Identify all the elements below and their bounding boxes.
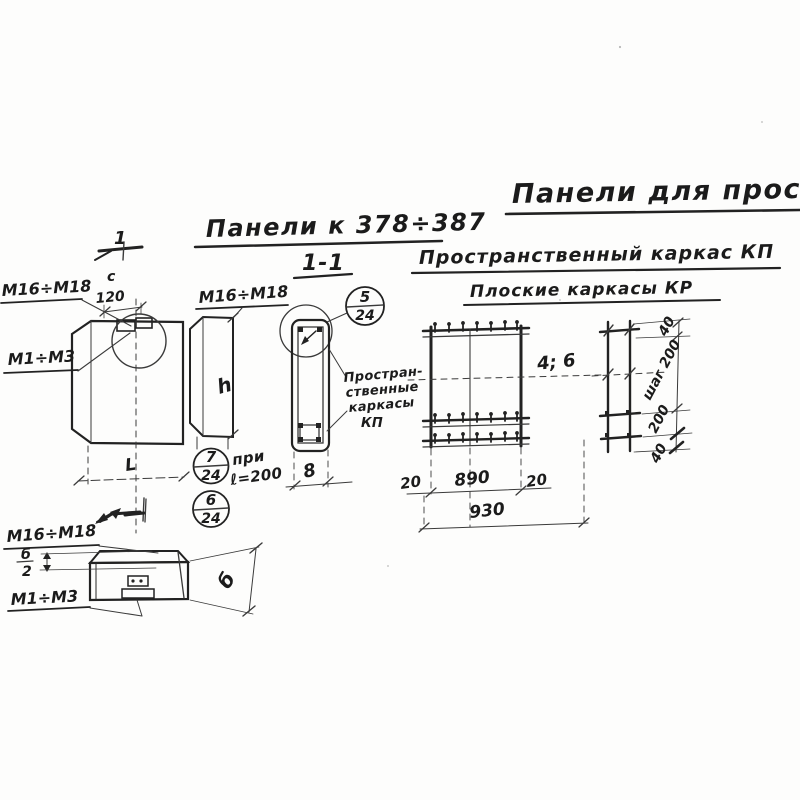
bottom-view: М16÷М18 б 2 М1÷М3 б <box>4 499 262 616</box>
bolt-label: М16÷М18 <box>198 282 289 307</box>
note-line-4: КП <box>361 416 383 431</box>
callout-5-den: 24 <box>355 308 374 324</box>
title-spatial-underline <box>412 268 780 273</box>
embed-plate <box>122 589 154 598</box>
frame-chord <box>423 438 529 441</box>
label-section-1-1: 1-1 <box>302 251 345 276</box>
front-view: М16÷М18 М1÷М3 с 120 1 L <box>1 228 189 533</box>
bolt-top-label: М16÷М18 <box>1 276 92 300</box>
frame-chord <box>423 328 529 331</box>
title-top-right-underline <box>506 210 800 214</box>
frame-rung <box>600 329 639 332</box>
rebar-dot <box>316 437 321 442</box>
dim-20-right: 20 <box>525 470 548 491</box>
dim-thickness: б <box>212 568 240 593</box>
title-spatial-frame: Пространственный каркас КП <box>419 241 775 269</box>
half-dim-den: 2 <box>22 564 32 580</box>
dim-930: 930 <box>468 499 506 523</box>
detail-circle <box>280 305 332 357</box>
arrowhead <box>43 552 51 559</box>
callout-7-den: 24 <box>201 468 220 484</box>
dim-890: 890 <box>453 467 491 491</box>
rebar-dot <box>627 433 631 437</box>
drawing-canvas: Панели для прост Панели к 378÷387 1-1 Пр… <box>0 0 800 800</box>
arrowhead <box>43 565 51 572</box>
dim-20-left: 20 <box>399 472 422 493</box>
panel-front-face <box>90 562 188 600</box>
rebar-dot <box>605 433 609 437</box>
dim-40-top: 40 <box>655 314 679 340</box>
rebar-dot <box>316 423 321 428</box>
rebar-dot <box>317 327 322 332</box>
callout-7-note-1: при <box>231 447 266 469</box>
title-panels-range: Панели к 378÷387 <box>205 208 486 243</box>
section-cut-mark <box>99 247 142 251</box>
arrowhead <box>301 336 309 345</box>
dim-8: 8 <box>301 460 318 483</box>
dim-line-L <box>78 477 184 481</box>
rebar-dot <box>298 423 303 428</box>
scanned-drawing-sheet: Панели для прост Панели к 378÷387 1-1 Пр… <box>0 0 800 800</box>
callout-6-den: 24 <box>201 511 220 527</box>
rebar-dot <box>298 327 303 332</box>
embed-plate <box>128 576 148 586</box>
half-dim-num: б <box>21 547 31 563</box>
section-view: Простран- ственные каркасы КП 8 <box>280 305 424 490</box>
center-line <box>408 375 602 380</box>
rebar-dot <box>298 437 303 442</box>
count-label: 4; 6 <box>535 350 576 375</box>
leader-line <box>78 333 130 371</box>
rebar-dot <box>626 410 630 414</box>
leader-line <box>90 608 142 616</box>
title-top-right: Панели для прост <box>512 174 800 210</box>
dim-120: 120 <box>95 288 126 307</box>
section-cut-number-top: 1 <box>114 228 127 249</box>
callout-6-num: 6 <box>206 491 216 509</box>
kp-plan-view: 4; 6 20 890 20 930 <box>399 320 602 532</box>
bolt-left-label: М1÷М3 <box>7 346 75 369</box>
dim-h: h <box>214 372 234 399</box>
embed-plate <box>136 318 152 328</box>
dim-line <box>249 549 256 612</box>
dim-line <box>420 523 588 529</box>
kr-frame-view: 40 шаг 200 200 40 <box>592 314 692 467</box>
dim-L: L <box>124 455 138 476</box>
callout-7-num: 7 <box>206 448 217 466</box>
rebar-dot <box>605 411 609 415</box>
bolt-bottom-label: М1÷М3 <box>10 586 78 609</box>
section-cut-mark <box>125 513 144 515</box>
dim-200: 200 <box>645 402 673 436</box>
dim-c: с <box>107 269 116 285</box>
callout-5-num: 5 <box>360 288 370 306</box>
bolt-top-label: М16÷М18 <box>6 521 97 546</box>
frame-chord <box>423 418 529 421</box>
dim-40-bottom: 40 <box>647 441 671 467</box>
title-flat-frames: Плоские каркасы КР <box>470 278 694 302</box>
side-view: М16÷М18 h <box>190 282 289 449</box>
scan-noise <box>387 46 763 567</box>
